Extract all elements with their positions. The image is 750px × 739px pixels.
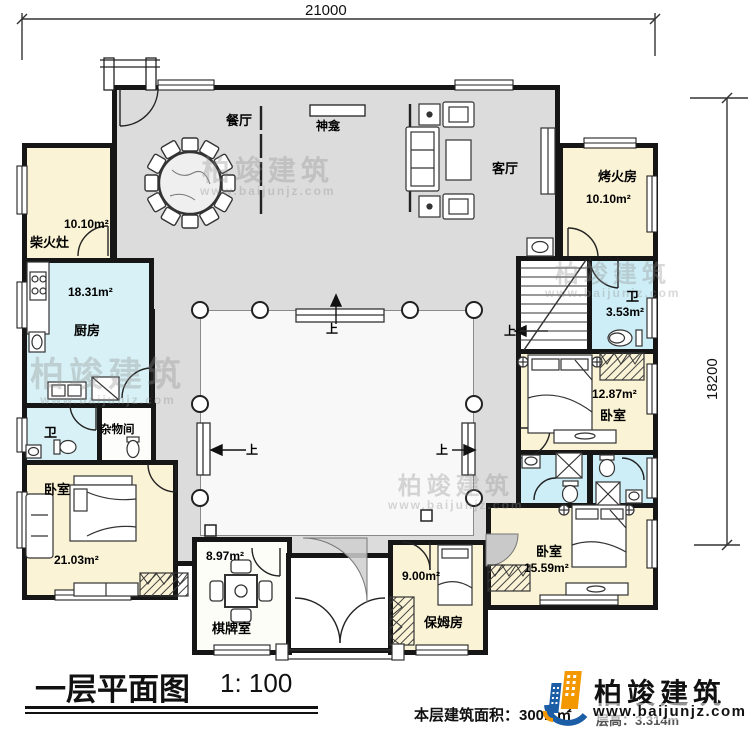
- room-bath-left: [516, 450, 592, 508]
- label-dining: 餐厅: [226, 110, 252, 129]
- room-bedroom-bottom-right: [486, 503, 658, 610]
- up-label-north-step: 上: [326, 320, 338, 337]
- title-underline-thick: [25, 706, 318, 709]
- up-label-west-step: 上: [246, 441, 258, 458]
- label-bedroom-left: 卧室: [44, 479, 70, 498]
- area-bedroom-mid: 12.87m²: [592, 387, 637, 401]
- area-wc-right: 3.53m²: [606, 305, 644, 319]
- room-stair-hall: [516, 256, 592, 354]
- area-bedroom-left: 21.03m²: [54, 553, 99, 567]
- room-wc-left: [22, 403, 102, 465]
- label-fire: 烤火房: [598, 166, 637, 185]
- room-bath-right: [587, 450, 658, 508]
- area-stove: 10.10m²: [64, 217, 109, 231]
- label-wc-right: 卫: [626, 286, 639, 305]
- label-stove: 柴火灶: [30, 232, 69, 251]
- label-shrine: 神龛: [316, 117, 340, 134]
- dimension-width: 21000: [305, 2, 347, 19]
- room-bedroom-mid: [516, 349, 658, 455]
- up-label-east-step: 上: [436, 441, 448, 458]
- area-bedroom-br: 15.59m²: [524, 561, 569, 575]
- area-chess: 8.97m²: [206, 549, 244, 563]
- label-nanny: 保姆房: [424, 612, 463, 631]
- room-courtyard: [200, 310, 474, 536]
- plan-scale: 1: 100: [220, 668, 292, 699]
- dimension-height: 18200: [704, 358, 721, 400]
- floor-plan: 柏竣建筑 www.baijunjz.com 柏竣建筑 www.baijunjz.…: [0, 0, 750, 739]
- plan-title: 一层平面图: [35, 664, 190, 709]
- area-nanny: 9.00m²: [402, 569, 440, 583]
- label-wc-left: 卫: [44, 422, 57, 441]
- title-underline-thin: [25, 712, 318, 714]
- room-nanny: [388, 540, 488, 655]
- label-living: 客厅: [492, 158, 518, 177]
- label-storage: 杂物间: [100, 421, 135, 437]
- label-kitchen: 厨房: [74, 320, 100, 339]
- label-chess: 棋牌室: [212, 618, 251, 637]
- area-fire: 10.10m²: [586, 192, 631, 206]
- up-label-stairs: 上: [504, 322, 516, 339]
- label-bedroom-br: 卧室: [536, 541, 562, 560]
- label-bedroom-mid: 卧室: [600, 405, 626, 424]
- baijun-logo-url: www.baijunjz.com: [593, 703, 746, 720]
- baijun-logo-icon: [543, 669, 591, 727]
- entry-porch: [286, 553, 394, 653]
- area-kitchen: 18.31m²: [68, 285, 113, 299]
